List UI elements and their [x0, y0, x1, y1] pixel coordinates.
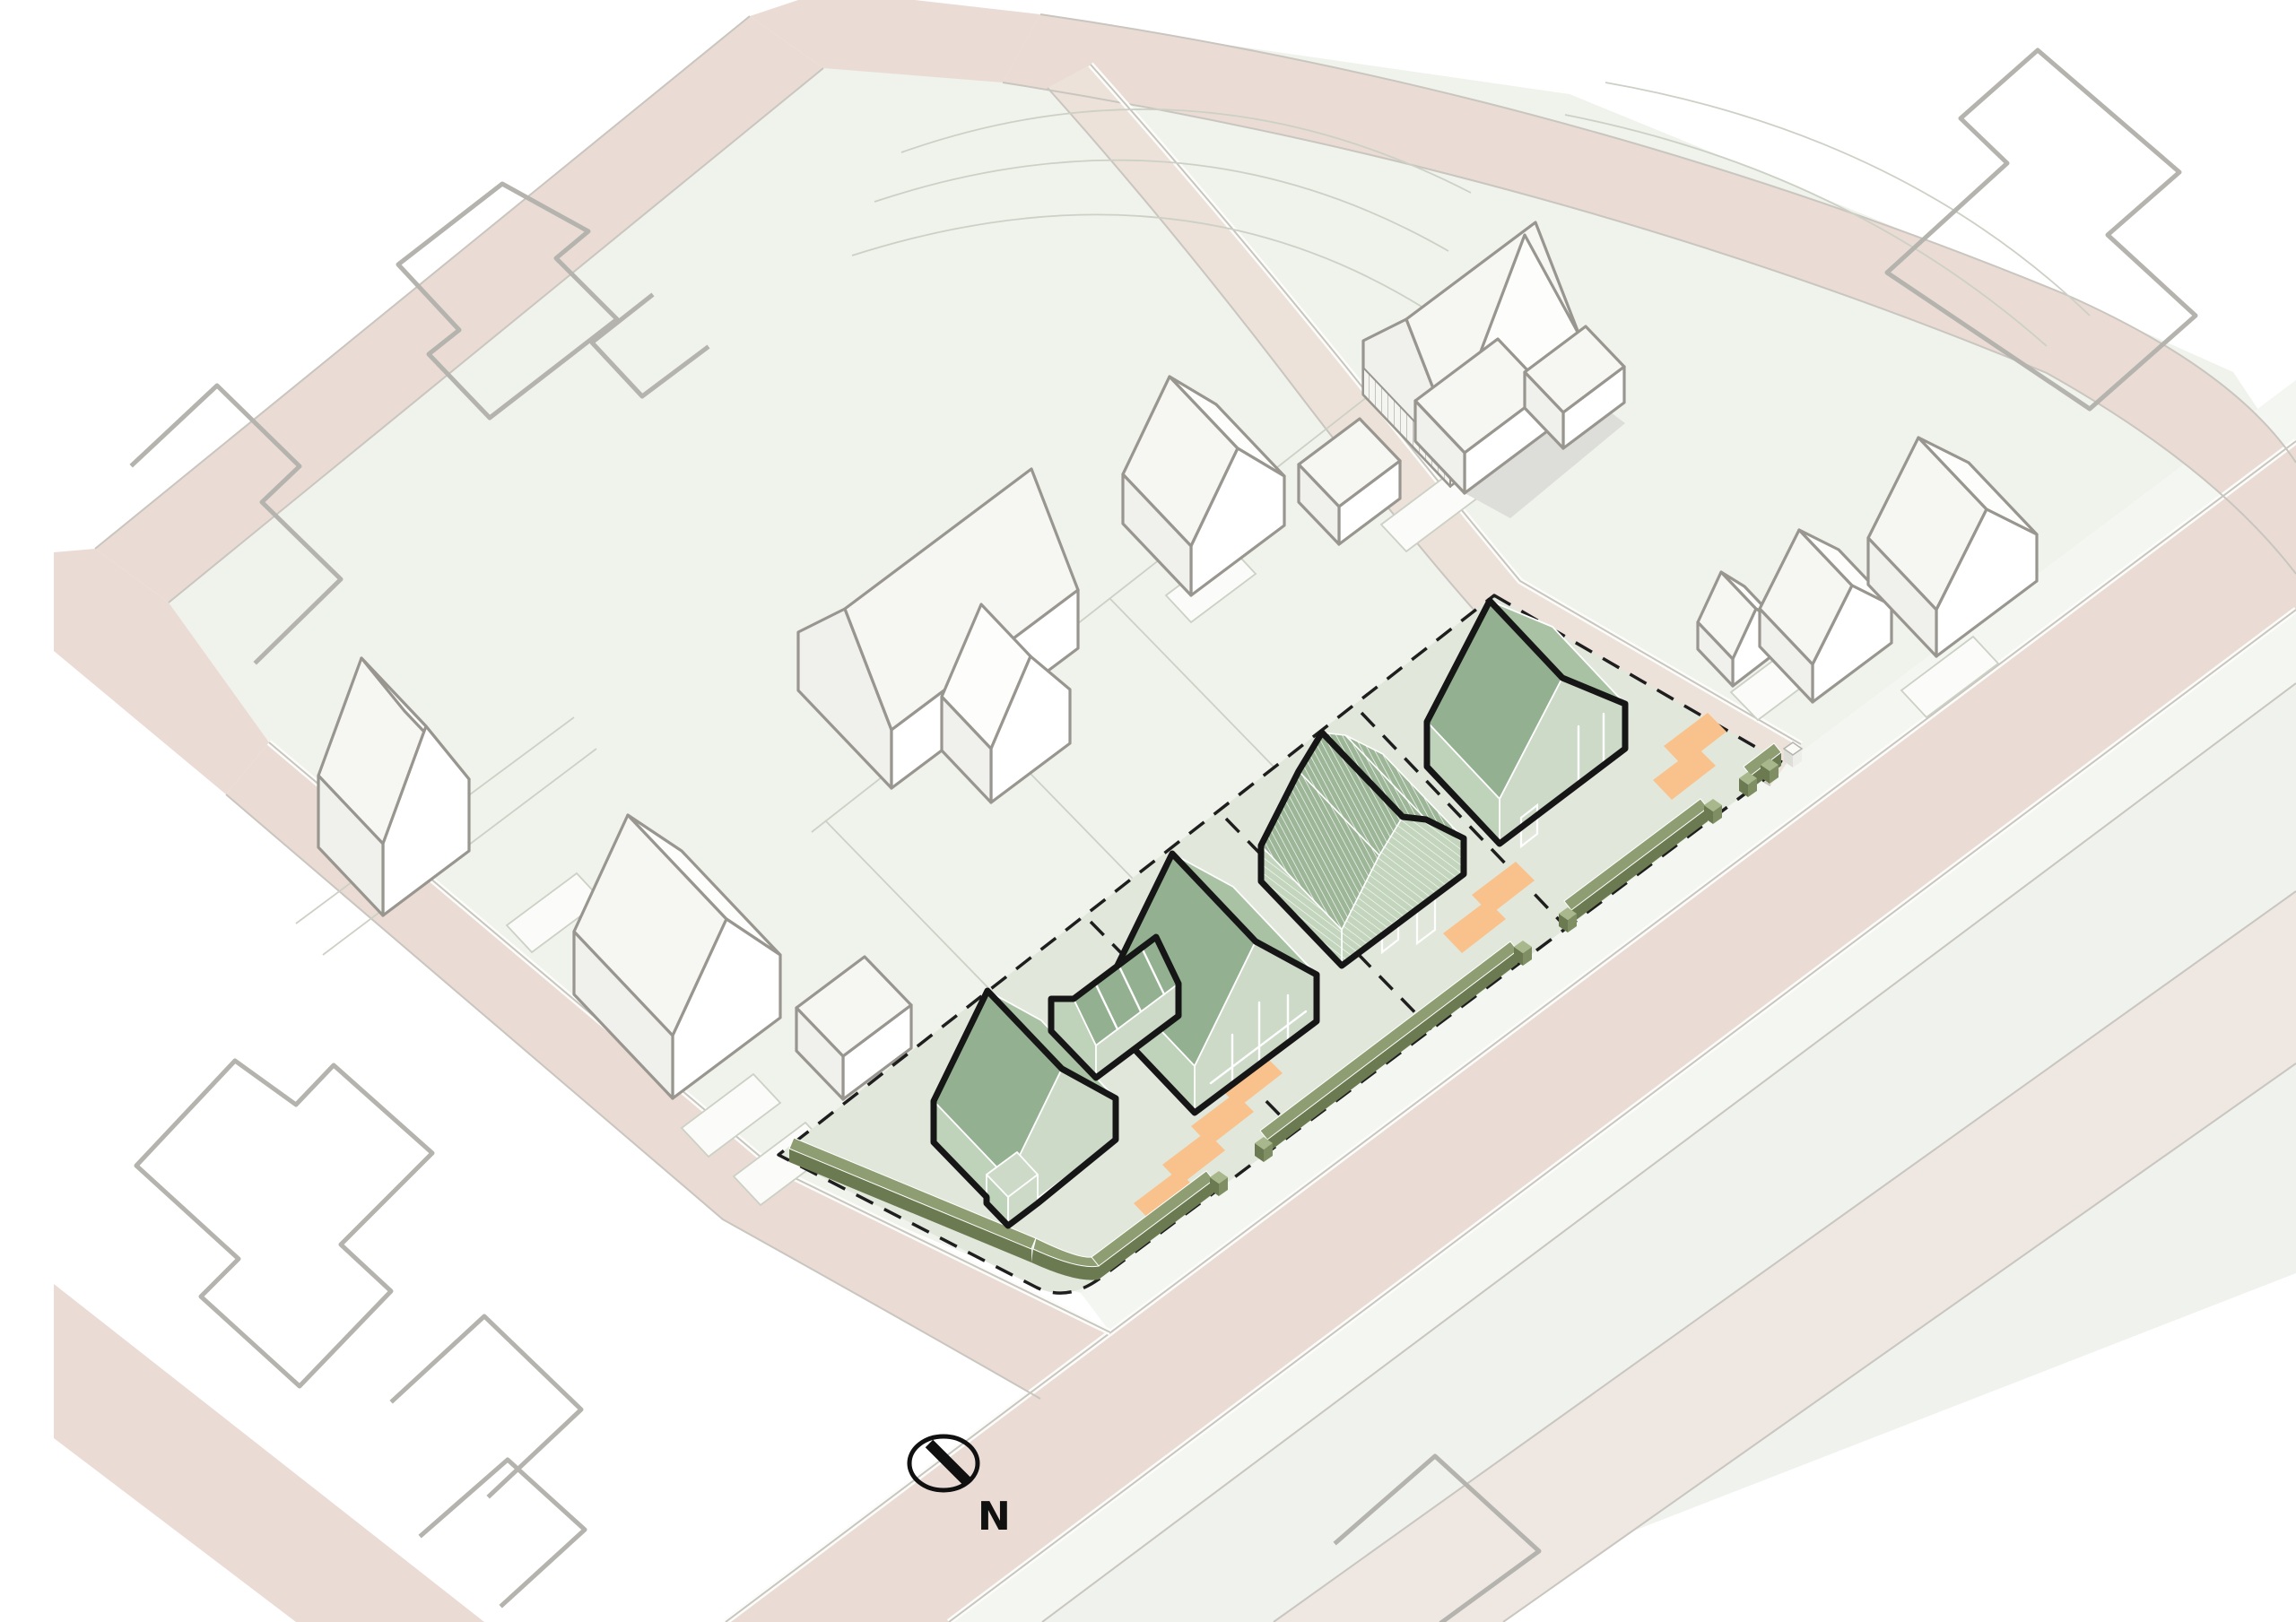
compass-label: N [978, 1494, 1011, 1540]
site-plan-canvas: N [0, 0, 2296, 1622]
footprint-outline [136, 1061, 432, 1386]
footprint-outline [393, 1316, 581, 1496]
bottom-left-road-band [54, 1284, 484, 1622]
